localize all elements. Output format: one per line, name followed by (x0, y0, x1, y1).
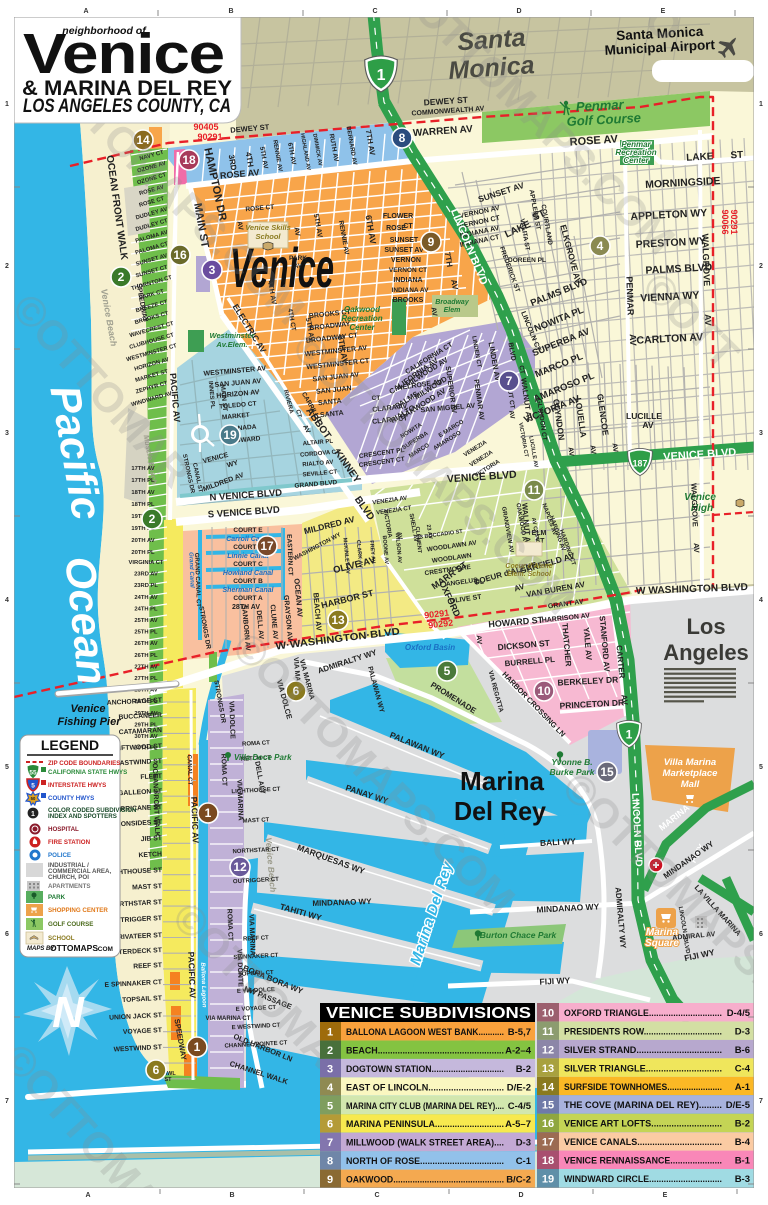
svg-text:90291: 90291 (729, 209, 739, 234)
svg-text:8: 8 (399, 131, 406, 145)
svg-text:CT: CT (517, 365, 525, 375)
svg-text:INDIANA AV: INDIANA AV (392, 287, 430, 294)
svg-text:VIA MARINA: VIA MARINA (235, 779, 243, 821)
svg-text:C: C (374, 1192, 379, 1199)
svg-text:D-3: D-3 (516, 1138, 531, 1149)
svg-text:DOGTOWN STATION...............: DOGTOWN STATION.........................… (346, 1064, 504, 1075)
svg-text:COUNTY HWYS: COUNTY HWYS (48, 795, 94, 802)
svg-text:2: 2 (118, 270, 125, 284)
svg-text:15: 15 (542, 1100, 554, 1112)
svg-text:Marketplace: Marketplace (663, 768, 719, 779)
svg-text:A: A (83, 8, 88, 15)
svg-text:20TH AV: 20TH AV (131, 538, 154, 544)
svg-text:B: B (228, 8, 233, 15)
svg-text:2: 2 (759, 263, 763, 270)
svg-text:A: A (85, 1192, 90, 1199)
svg-text:20TH PL: 20TH PL (131, 550, 155, 556)
svg-text:WALGROVE: WALGROVE (700, 233, 712, 286)
svg-text:AV: AV (588, 445, 596, 455)
svg-text:PARK: PARK (289, 255, 307, 262)
svg-text:WALGROVE: WALGROVE (689, 483, 700, 527)
svg-text:MARINA PENINSULA..............: MARINA PENINSULA........................… (346, 1119, 504, 1130)
svg-text:AV: AV (610, 443, 618, 453)
svg-text:ROSE: ROSE (386, 225, 406, 232)
svg-text:Angeles: Angeles (663, 640, 749, 665)
svg-text:5: 5 (5, 764, 9, 771)
svg-text:A-5–7: A-5–7 (505, 1119, 531, 1130)
svg-text:Sherman Canal: Sherman Canal (223, 587, 275, 594)
svg-text:7: 7 (759, 1098, 763, 1105)
svg-text:PRESIDENTS ROW................: PRESIDENTS ROW..........................… (564, 1027, 722, 1038)
svg-text:SHOPPING CENTER: SHOPPING CENTER (48, 907, 108, 914)
svg-text:B-6: B-6 (735, 1045, 750, 1056)
svg-text:Center: Center (623, 156, 649, 165)
svg-text:KETCH: KETCH (138, 851, 162, 859)
svg-text:BROOKS: BROOKS (393, 297, 424, 304)
svg-text:A-2–4: A-2–4 (505, 1046, 532, 1057)
svg-text:AV: AV (475, 635, 483, 645)
svg-text:Los: Los (686, 614, 725, 639)
svg-text:14: 14 (542, 1081, 555, 1093)
svg-text:BALI WY: BALI WY (540, 836, 577, 848)
svg-text:5: 5 (759, 764, 763, 771)
svg-text:8: 8 (327, 1156, 333, 1168)
svg-text:26TH AV: 26TH AV (134, 641, 157, 647)
svg-text:Howland Canal: Howland Canal (223, 570, 274, 577)
svg-text:Oxford Basin: Oxford Basin (405, 643, 455, 652)
svg-text:12: 12 (233, 860, 247, 874)
svg-text:Villa Doce Park: Villa Doce Park (234, 753, 292, 762)
svg-text:B-2: B-2 (516, 1064, 531, 1075)
svg-text:AV: AV (642, 420, 654, 430)
svg-text:PARK: PARK (48, 894, 66, 901)
svg-text:LEGEND: LEGEND (41, 737, 99, 753)
svg-text:D/E-5: D/E-5 (726, 1100, 751, 1111)
svg-text:HOSPITAL: HOSPITAL (48, 826, 79, 833)
svg-text:E: E (661, 8, 666, 15)
svg-text:Del Rey: Del Rey (454, 796, 547, 826)
svg-text:2: 2 (5, 263, 9, 270)
svg-text:7: 7 (5, 1098, 9, 1105)
svg-text:Venice: Venice (684, 492, 716, 503)
svg-text:9: 9 (327, 1174, 333, 1186)
svg-text:11: 11 (542, 1026, 554, 1038)
svg-text:Mall: Mall (681, 779, 700, 790)
svg-text:LAKE: LAKE (686, 151, 714, 163)
svg-text:1: 1 (626, 727, 633, 741)
svg-text:4: 4 (5, 597, 9, 604)
svg-text:Fishing Pier: Fishing Pier (58, 716, 122, 728)
svg-text:VENICE ART LOFTS..............: VENICE ART LOFTS........................… (564, 1119, 722, 1130)
svg-text:10: 10 (542, 1008, 554, 1020)
svg-text:B/C-2: B/C-2 (506, 1175, 531, 1186)
svg-text:AV: AV (692, 543, 701, 553)
svg-text:ST: ST (730, 150, 743, 162)
svg-text:2: 2 (327, 1045, 333, 1057)
svg-text:VENICE RENNAISSANCE...........: VENICE RENNAISSANCE..................... (564, 1156, 722, 1167)
svg-text:25TH AV: 25TH AV (134, 618, 157, 624)
svg-text:School: School (255, 232, 281, 241)
svg-text:4: 4 (327, 1082, 334, 1094)
svg-text:12: 12 (542, 1044, 554, 1056)
svg-text:INDEX AND SPOTTERS: INDEX AND SPOTTERS (48, 813, 117, 820)
svg-text:CALIFORNIA STATE HWYS: CALIFORNIA STATE HWYS (48, 769, 127, 776)
svg-text:1: 1 (5, 101, 9, 108)
svg-text:SURFSIDE TOWNHOMES............: SURFSIDE TOWNHOMES......................… (564, 1082, 722, 1093)
svg-text:3: 3 (327, 1063, 333, 1075)
svg-text:B-3: B-3 (735, 1174, 750, 1185)
svg-text:NORTH OF ROSE.................: NORTH OF ROSE...........................… (346, 1156, 504, 1167)
svg-text:B-5,7: B-5,7 (508, 1027, 531, 1038)
svg-text:C-4: C-4 (735, 1063, 751, 1074)
svg-text:D-3: D-3 (735, 1027, 750, 1038)
svg-text:6: 6 (153, 1063, 160, 1077)
svg-text:1: 1 (327, 1027, 333, 1039)
svg-text:EAST OF LINCOLN...............: EAST OF LINCOLN.........................… (346, 1082, 504, 1093)
svg-text:SILVER TRIANGLE...............: SILVER TRIANGLE.........................… (564, 1063, 722, 1074)
svg-text:17: 17 (260, 539, 274, 553)
svg-text:2: 2 (149, 512, 156, 526)
svg-text:55: 55 (29, 770, 37, 777)
svg-text:OTTOMAPS: OTTOMAPS (50, 943, 98, 953)
svg-text:Elem: Elem (444, 307, 461, 314)
svg-text:23RD PL: 23RD PL (134, 583, 158, 589)
svg-text:25TH PL: 25TH PL (134, 630, 158, 636)
svg-text:VENICE SUBDIVISIONS: VENICE SUBDIVISIONS (326, 1005, 531, 1022)
svg-text:FLOWER: FLOWER (383, 213, 413, 220)
svg-text:LOS ANGELES COUNTY, CA: LOS ANGELES COUNTY, CA (23, 95, 231, 117)
svg-text:Marina: Marina (460, 766, 545, 796)
svg-text:15: 15 (600, 765, 614, 779)
svg-text:AV: AV (566, 447, 574, 457)
svg-text:18TH AV: 18TH AV (131, 490, 154, 496)
svg-text:Broadway: Broadway (435, 299, 470, 306)
svg-text:10: 10 (537, 684, 551, 698)
svg-text:PACIFIC AV: PACIFIC AV (189, 796, 201, 843)
svg-text:COURT E: COURT E (233, 527, 263, 534)
svg-text:OXFORD TRIANGLE...............: OXFORD TRIANGLE.........................… (564, 1008, 722, 1019)
svg-text:AV: AV (620, 694, 630, 706)
svg-text:SCHOOL: SCHOOL (48, 935, 75, 942)
svg-text:5: 5 (444, 664, 451, 678)
svg-text:B-4: B-4 (735, 1137, 751, 1148)
svg-text:Center: Center (349, 323, 375, 332)
svg-text:N: N (52, 988, 85, 1037)
svg-text:Venice: Venice (70, 703, 105, 715)
svg-text:VIA DOLCE: VIA DOLCE (227, 701, 235, 739)
svg-text:MILLWOOD (WALK STREET AREA)...: MILLWOOD (WALK STREET AREA).... (346, 1138, 504, 1149)
svg-text:13: 13 (331, 613, 345, 627)
svg-text:3: 3 (5, 430, 9, 437)
svg-text:C: C (372, 8, 377, 15)
svg-text:16: 16 (542, 1118, 554, 1130)
svg-text:Villa Marina: Villa Marina (664, 757, 716, 768)
svg-text:5: 5 (31, 783, 35, 790)
svg-text:POLICE: POLICE (48, 852, 71, 859)
svg-text:WINDWARD CIRCLE...............: WINDWARD CIRCLE.........................… (564, 1174, 722, 1185)
svg-text:OAKWOOD.......................: OAKWOOD.................................… (346, 1175, 504, 1186)
svg-text:24TH AV: 24TH AV (134, 595, 157, 601)
svg-text:B-2: B-2 (735, 1119, 750, 1130)
svg-text:DOREEN PL: DOREEN PL (508, 257, 546, 264)
svg-text:17: 17 (542, 1137, 554, 1149)
svg-text:D: D (518, 1192, 523, 1199)
svg-text:1: 1 (194, 1040, 201, 1054)
svg-text:23RD AV: 23RD AV (134, 572, 158, 578)
svg-text:FIRE STATION: FIRE STATION (48, 839, 91, 846)
svg-text:VERNON CT: VERNON CT (389, 267, 427, 274)
svg-text:B-1: B-1 (735, 1156, 751, 1167)
svg-text:Av.Elem.: Av.Elem. (215, 340, 247, 349)
svg-text:Oakwood: Oakwood (344, 305, 381, 314)
svg-text:6: 6 (5, 931, 9, 938)
svg-text:4: 4 (597, 239, 604, 253)
svg-text:COURT B: COURT B (233, 578, 263, 585)
svg-text:7: 7 (327, 1137, 333, 1149)
svg-text:D-4/5: D-4/5 (727, 1008, 751, 1019)
svg-text:26TH PL: 26TH PL (134, 653, 158, 659)
svg-text:AV: AV (294, 263, 303, 270)
svg-text:VENICE CANALS.................: VENICE CANALS...........................… (564, 1137, 722, 1148)
svg-text:16: 16 (173, 248, 187, 262)
svg-text:4: 4 (759, 597, 763, 604)
svg-text:INTERSTATE HWYS: INTERSTATE HWYS (48, 782, 106, 789)
svg-text:D: D (516, 8, 521, 15)
svg-text:VIRGINIA CT: VIRGINIA CT (129, 560, 164, 566)
svg-text:Grand Canal: Grand Canal (187, 552, 194, 588)
svg-text:18: 18 (542, 1155, 554, 1167)
svg-text:B: B (229, 1192, 234, 1199)
svg-text:VERNON: VERNON (391, 257, 421, 264)
svg-text:FIJI WY: FIJI WY (539, 975, 571, 987)
svg-text:27TH PL: 27TH PL (134, 676, 158, 682)
svg-text:Venice Skills: Venice Skills (245, 223, 291, 232)
svg-text:CHURCH, POI: CHURCH, POI (48, 874, 89, 881)
svg-text:GOLF COURSE: GOLF COURSE (48, 921, 93, 928)
svg-text:187: 187 (633, 458, 648, 468)
svg-text:THE COVE (MARINA DEL REY).....: THE COVE (MARINA DEL REY)......... (564, 1100, 722, 1111)
svg-text:BALLONA LAGOON WEST BANK......: BALLONA LAGOON WEST BANK........... (346, 1027, 504, 1038)
svg-text:SILVER STRAND.................: SILVER STRAND...........................… (564, 1045, 722, 1056)
svg-text:90066: 90066 (720, 209, 730, 234)
svg-text:24TH PL: 24TH PL (134, 606, 158, 612)
svg-text:Recreation: Recreation (341, 314, 382, 323)
svg-text:CANAL CT: CANAL CT (185, 755, 192, 786)
svg-text:INDIANA: INDIANA (393, 277, 422, 284)
svg-text:COURT C: COURT C (233, 561, 263, 568)
svg-text:1: 1 (759, 101, 763, 108)
svg-text:Burton Chace Park: Burton Chace Park (480, 930, 558, 940)
svg-text:APARTMENTS: APARTMENTS (48, 883, 91, 890)
svg-text:13: 13 (542, 1063, 554, 1075)
svg-text:50: 50 (31, 796, 36, 801)
svg-text:6: 6 (327, 1119, 333, 1131)
svg-text:EASTERN CT: EASTERN CT (285, 534, 293, 576)
svg-text:A-1: A-1 (735, 1082, 751, 1093)
svg-text:C-1: C-1 (516, 1156, 532, 1167)
svg-text:7: 7 (506, 374, 513, 388)
svg-text:19: 19 (542, 1174, 554, 1186)
svg-text:1: 1 (377, 67, 386, 84)
svg-text:MARINA CITY CLUB (MARINA DEL R: MARINA CITY CLUB (MARINA DEL REY).... (346, 1101, 504, 1112)
svg-text:1: 1 (205, 806, 212, 820)
svg-text:SUNSET: SUNSET (390, 237, 419, 244)
svg-text:11: 11 (528, 483, 541, 497)
svg-text:90291: 90291 (197, 132, 222, 142)
svg-text:SUNSET AV: SUNSET AV (384, 247, 424, 254)
svg-text:D/E-2: D/E-2 (507, 1082, 531, 1093)
svg-text:ZIP CODE BOUNDARIES: ZIP CODE BOUNDARIES (48, 760, 120, 767)
svg-text:E: E (663, 1192, 668, 1199)
svg-text:C-4/5: C-4/5 (508, 1101, 532, 1112)
svg-text:3: 3 (759, 430, 763, 437)
svg-text:28TH AV: 28TH AV (232, 604, 260, 611)
svg-text:6: 6 (759, 931, 763, 938)
svg-text:.COM: .COM (96, 946, 113, 953)
svg-text:COURT A: COURT A (233, 595, 263, 602)
svg-text:AV: AV (628, 334, 638, 346)
svg-text:27TH AV: 27TH AV (134, 664, 157, 670)
svg-text:9: 9 (428, 235, 435, 249)
svg-text:ST: ST (164, 1077, 172, 1083)
svg-text:18TH PL: 18TH PL (131, 502, 155, 508)
svg-text:5: 5 (327, 1100, 333, 1112)
svg-text:ROMA CT: ROMA CT (219, 754, 227, 787)
svg-text:BEACH.........................: BEACH...................................… (346, 1046, 504, 1057)
svg-text:1: 1 (31, 811, 35, 818)
svg-text:18: 18 (182, 153, 196, 167)
svg-text:19: 19 (223, 428, 237, 442)
svg-text:VIA MARINA CT: VIA MARINA CT (206, 1016, 251, 1022)
svg-text:Westminster: Westminster (210, 331, 256, 340)
